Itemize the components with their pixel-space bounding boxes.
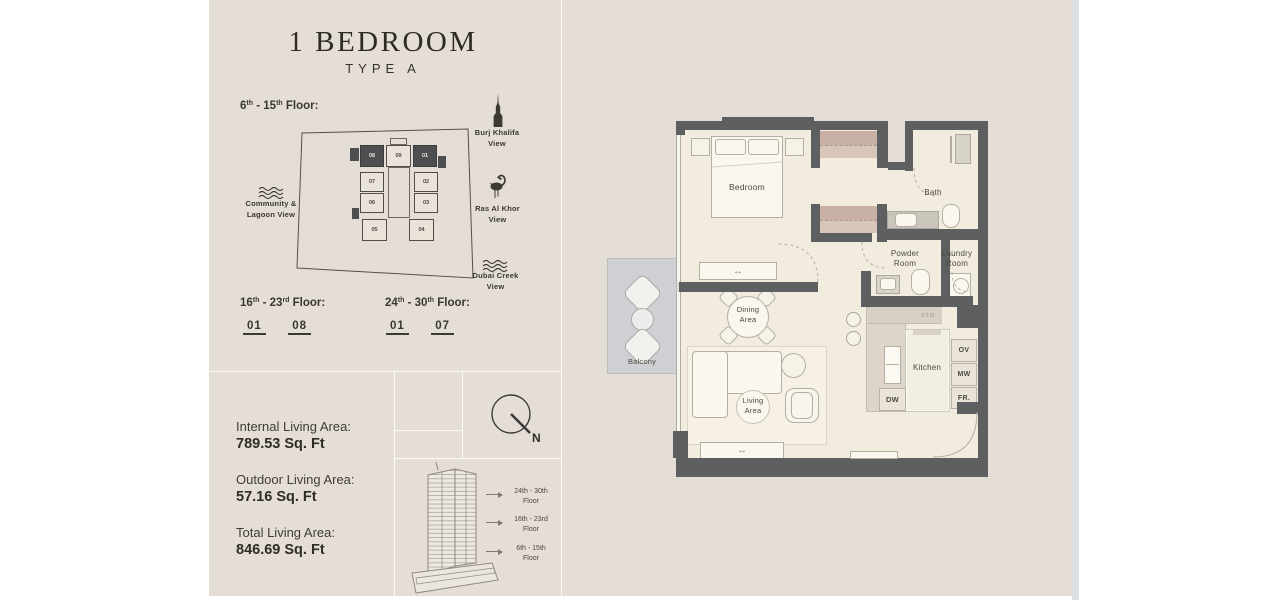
elevation-word: Floor <box>502 497 560 507</box>
floor-sup: th <box>253 297 260 304</box>
keyplan-unit-06: 06 <box>360 193 384 213</box>
floor-num: 15 <box>263 100 276 112</box>
floors-16-23-heading: 16th - 23rd Floor: <box>240 297 325 309</box>
grid-line-v1 <box>394 371 395 596</box>
keyplan-balcony-tab <box>350 148 359 161</box>
keyplan-balcony-tab <box>352 208 359 219</box>
view-line: Dubai Creek <box>457 271 534 282</box>
view-line: Burj Khalifa <box>462 128 532 139</box>
ras-al-khor-view-label: Ras Al Khor View <box>459 204 536 225</box>
view-line: Community & <box>231 199 311 210</box>
keyplan-core <box>388 167 410 218</box>
elevation-word: Floor <box>502 525 560 535</box>
label-line: Room <box>931 259 983 269</box>
label-line: Living <box>736 396 770 406</box>
elevation-range: 16th - 23rd <box>502 515 560 525</box>
floor-word: Floor: <box>293 297 326 309</box>
page-subtitle: TYPE A <box>233 61 533 76</box>
stat-internal-area: Internal Living Area: 789.53 Sq. Ft <box>236 419 351 452</box>
label-line: Powder <box>879 249 931 259</box>
powder-room-label: Powder Room <box>879 249 931 270</box>
floor-sup: rd <box>282 297 289 304</box>
keyplan-balcony-tab <box>438 156 446 168</box>
burj-khalifa-icon <box>492 93 504 127</box>
elevation-arrow <box>486 494 499 495</box>
elevation-label-24-30: 24th - 30th Floor <box>502 487 560 507</box>
view-line: View <box>457 282 534 293</box>
living-area-label: Living Area <box>736 396 770 416</box>
stat-label: Internal Living Area: <box>236 419 351 434</box>
floors-16-23-units: 01 08 <box>243 316 329 335</box>
elevation-range: 24th - 30th <box>502 487 560 497</box>
dining-area-label: Dining Area <box>727 305 769 325</box>
keyplan-unit-07: 07 <box>360 172 384 192</box>
grid-line-h1 <box>394 430 462 431</box>
unit-link-07[interactable]: 07 <box>431 320 454 335</box>
keyplan-unit-08: 08 <box>360 145 384 167</box>
compass-north-label: N <box>532 431 541 445</box>
floor-num: 30 <box>415 297 428 309</box>
building-elevation-sketch <box>400 461 505 596</box>
stat-value: 846.69 Sq. Ft <box>236 542 335 558</box>
keyplan-unit-04: 04 <box>409 219 434 241</box>
panel-divider <box>561 0 562 596</box>
compass-icon: N <box>488 391 544 447</box>
view-line: View <box>462 139 532 150</box>
label-line: Area <box>736 406 770 416</box>
elevation-arrow <box>486 522 499 523</box>
keyplan-unit-03: 03 <box>414 193 438 213</box>
view-line: View <box>459 215 536 226</box>
scrollbar[interactable] <box>1072 0 1079 600</box>
floor-word: Floor: <box>437 297 470 309</box>
bedroom-label: Bedroom <box>707 182 787 193</box>
dubai-creek-view-label: Dubai Creek View <box>457 271 534 292</box>
keyplan-unit-05: 05 <box>362 219 387 241</box>
unit-link-01[interactable]: 01 <box>243 320 266 335</box>
floor-word: Floor: <box>286 100 319 112</box>
floor-sup: th <box>276 100 283 107</box>
unit-link-01[interactable]: 01 <box>386 320 409 335</box>
floor-sep: - <box>408 297 412 309</box>
floor-sup: th <box>427 297 434 304</box>
label-line: Area <box>727 315 769 325</box>
label-line: Dining <box>727 305 769 315</box>
floor-sup: th <box>398 297 405 304</box>
elevation-word: Floor <box>502 554 560 564</box>
floors-24-30-heading: 24th - 30th Floor: <box>385 297 470 309</box>
elevation-label-6-15: 6th - 15th Floor <box>502 544 560 564</box>
bath-label: Bath <box>913 188 953 198</box>
flamingo-icon <box>489 171 507 199</box>
stat-value: 789.53 Sq. Ft <box>236 436 351 452</box>
unit-link-08[interactable]: 08 <box>288 320 311 335</box>
keyplan-unit-02: 02 <box>414 172 438 192</box>
floor-num: 24 <box>385 297 398 309</box>
elevation-range: 6th - 15th <box>502 544 560 554</box>
floor-sup: th <box>246 100 253 107</box>
laundry-room-label: Laundry Room <box>931 249 983 270</box>
stat-label: Total Living Area: <box>236 525 335 540</box>
floors-24-30-units: 01 07 <box>386 316 472 335</box>
keyplan-notch <box>390 138 407 145</box>
floor-num: 23 <box>270 297 283 309</box>
view-line: Lagoon View <box>231 210 311 221</box>
stat-label: Outdoor Living Area: <box>236 472 355 487</box>
stat-total-area: Total Living Area: 846.69 Sq. Ft <box>236 525 335 558</box>
door-arcs <box>606 116 990 480</box>
section-divider <box>209 371 561 372</box>
floorplan-page: 1 BEDROOM TYPE A 6th - 15th Floor: 08 09… <box>0 0 1280 600</box>
keyplan-unit-01: 01 <box>413 145 437 167</box>
label-line: Room <box>879 259 931 269</box>
view-line: Ras Al Khor <box>459 204 536 215</box>
floor-num: 16 <box>240 297 253 309</box>
burj-view-label: Burj Khalifa View <box>462 128 532 149</box>
floor-sep: - <box>256 100 260 112</box>
stat-value: 57.16 Sq. Ft <box>236 489 355 505</box>
keyplan-floor-heading: 6th - 15th Floor: <box>240 100 318 112</box>
kitchen-label: Kitchen <box>903 363 951 373</box>
stat-outdoor-area: Outdoor Living Area: 57.16 Sq. Ft <box>236 472 355 505</box>
community-lagoon-view-label: Community & Lagoon View <box>231 199 311 220</box>
elevation-arrow <box>486 551 499 552</box>
grid-line-h2 <box>394 458 561 459</box>
grid-line-v2 <box>462 371 463 458</box>
label-line: Laundry <box>931 249 983 259</box>
keyplan-unit-09: 09 <box>386 145 411 167</box>
page-title: 1 BEDROOM <box>233 26 533 59</box>
elevation-label-16-23: 16th - 23rd Floor <box>502 515 560 535</box>
floor-sep: - <box>263 297 267 309</box>
lagoon-waves-icon <box>258 186 285 200</box>
sto-label: STO <box>913 313 943 320</box>
